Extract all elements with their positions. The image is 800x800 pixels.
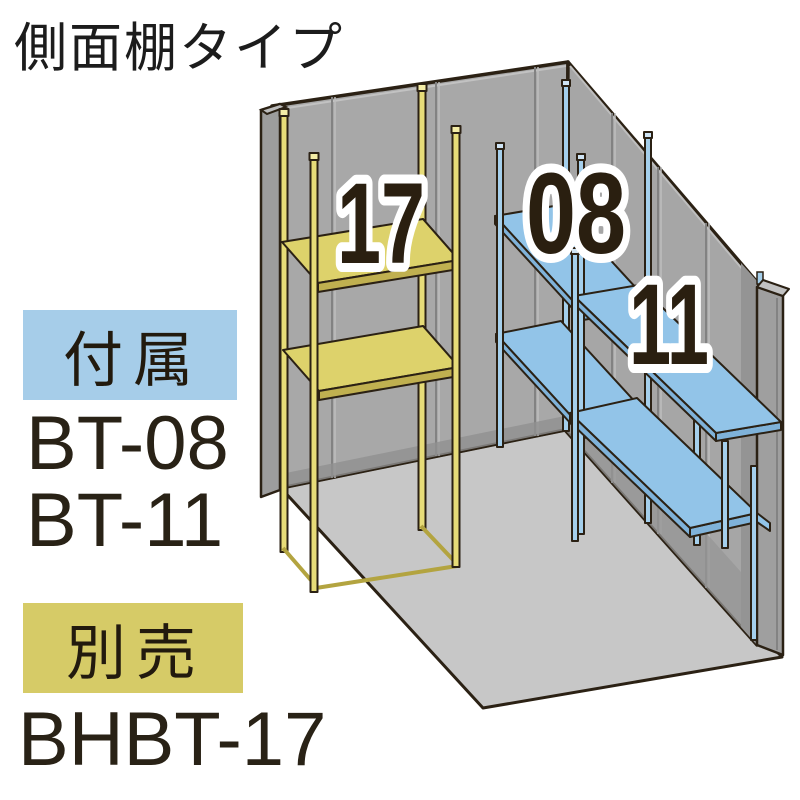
sold-separately-badge: 別売 bbox=[23, 603, 243, 693]
shelf-label-17: 17 bbox=[337, 160, 425, 288]
shelf-label-11: 11 bbox=[629, 261, 709, 389]
sold-separately-item-bhbt17: BHBT-17 bbox=[18, 702, 326, 778]
included-badge: 付属 bbox=[23, 310, 237, 400]
right-corner-post bbox=[757, 272, 789, 655]
shelf-label-08: 08 bbox=[526, 150, 626, 278]
included-item-bt08: BT-08 bbox=[26, 406, 229, 482]
page: 側面棚タイプ bbox=[0, 0, 800, 800]
included-item-bt11: BT-11 bbox=[26, 483, 223, 559]
